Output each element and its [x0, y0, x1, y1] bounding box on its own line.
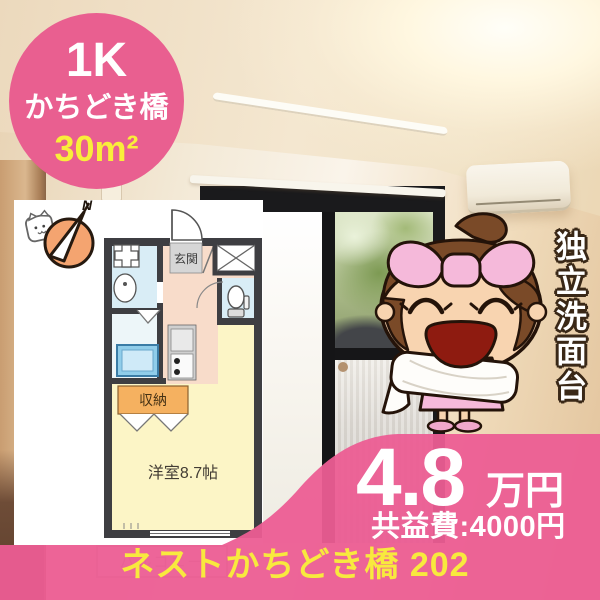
mascot-character: [378, 208, 548, 432]
badge-area: 30m²: [54, 131, 138, 167]
window-lock-knob: [338, 362, 348, 372]
badge-location: かちどき橋: [24, 94, 168, 123]
feature-tag-vertical: 独立洗面台: [546, 230, 591, 405]
badge-layout: 1K: [66, 37, 127, 85]
property-name: ネストかちどき橋 202: [60, 548, 530, 582]
compass-icon: N: [24, 196, 104, 272]
summary-badge: 1K かちどき橋 30m²: [9, 13, 184, 189]
main-room-label: 洋室8.7帖: [148, 464, 218, 482]
compass-n-label: N: [82, 197, 93, 213]
entrance-label: 玄関: [174, 251, 198, 266]
common-fee: 共益費:4000円: [371, 512, 566, 544]
rent-unit: 万円: [486, 472, 564, 511]
closet-label: 収納: [139, 392, 167, 408]
rent-amount: 4.8: [356, 437, 464, 519]
listing-card: 玄関: [0, 0, 600, 600]
window-mullion: [322, 212, 335, 543]
